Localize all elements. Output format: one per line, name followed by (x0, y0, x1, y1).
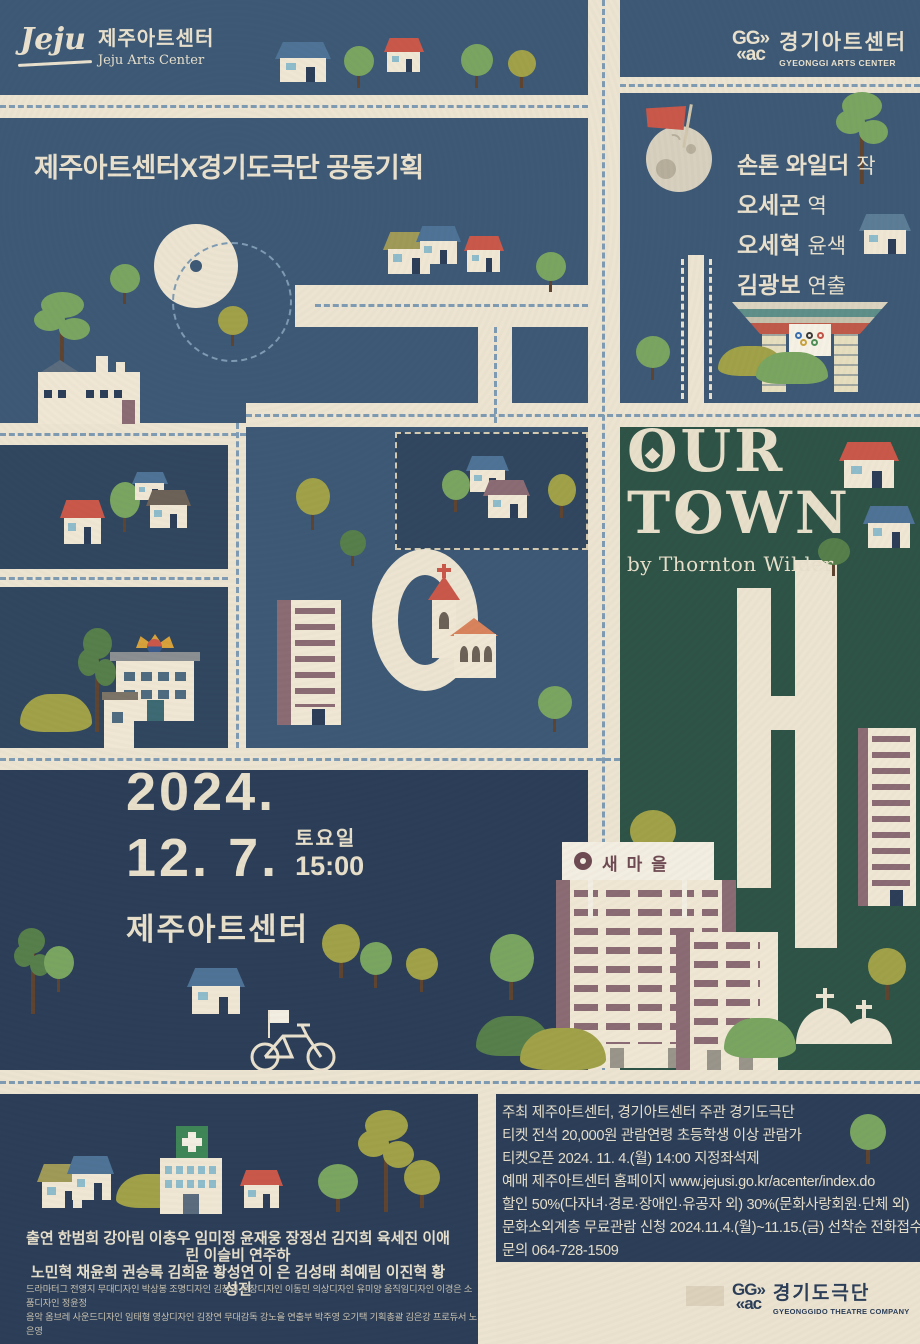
hospital-window (165, 1166, 172, 1174)
road-dash (0, 105, 588, 108)
hospital-window (187, 1166, 194, 1174)
house-icon (866, 506, 912, 548)
ggtc-mark-bottom: «ac (732, 1297, 765, 1311)
hospital-window (165, 1180, 172, 1188)
tree-canopy (110, 264, 140, 293)
info-line-booking: 예매 제주아트센터 홈페이지 www.jejusi.go.kr/acenter/… (502, 1171, 912, 1194)
tree-canopy (442, 470, 470, 500)
road-letter-bar (795, 560, 837, 948)
sign-post (588, 880, 593, 918)
apartment-column (676, 932, 690, 1070)
tree-icon (44, 946, 74, 992)
house-door (440, 250, 447, 264)
apartment-door (610, 1048, 624, 1068)
cast-line-1: 출연 한범희 강아림 이충우 임미정 윤재웅 장정선 김지희 육세진 이애린 이… (24, 1230, 452, 1264)
info-line-free-viewing: 문화소외계층 무료관람 신청 2024.11.4.(월)~11.15.(금) 선… (502, 1217, 912, 1240)
house-window (139, 487, 145, 492)
credit-adaptation-name: 오세혁 (737, 232, 800, 258)
house-window (424, 246, 432, 253)
sign-post (682, 880, 687, 918)
house-window (493, 500, 501, 507)
gate-leg (834, 334, 858, 392)
hospital-window (198, 1180, 205, 1188)
house-door (892, 532, 900, 548)
house-body (387, 52, 420, 72)
cityhall-window (141, 690, 152, 699)
flag-cloth (646, 106, 686, 130)
apartment-column (858, 728, 868, 906)
house-icon (70, 1156, 112, 1200)
house-icon (148, 490, 188, 528)
tree-canopy (318, 1164, 358, 1199)
flag-icon (646, 104, 698, 154)
credit-director-name: 김광보 (737, 272, 800, 298)
house-window (392, 56, 399, 62)
road-dash (0, 433, 246, 436)
house-door (888, 239, 896, 254)
schedule-day-time: 토요일 15:00 (295, 822, 364, 888)
tree-icon (536, 252, 566, 292)
jeju-logo-mark: Jeju (20, 22, 86, 58)
factory-window (86, 390, 94, 398)
house-door (263, 1194, 270, 1208)
bicycle-icon (246, 1008, 338, 1074)
house-door (84, 527, 91, 544)
church-window (439, 612, 449, 629)
tree-canopy (859, 120, 888, 144)
hospital-window (176, 1166, 183, 1174)
co-production-heading: 제주아트센터X경기도극단 공동기획 (34, 146, 424, 185)
apartment-door (890, 890, 903, 906)
credit-adaptation-role: 윤색 (807, 235, 846, 258)
house-door (872, 471, 882, 488)
tree-icon (508, 50, 536, 88)
cityhall-window (158, 672, 169, 681)
tree-icon (296, 478, 330, 530)
house-roof (384, 38, 424, 52)
grave-cross (856, 1005, 872, 1009)
ggac-mark-bottom: «ac (732, 47, 769, 63)
tree-icon (218, 306, 248, 346)
ticket-info: 주최 제주아트센터, 경기아트센터 주관 경기도극단 티켓 전석 20,000원… (502, 1102, 912, 1263)
house-icon (466, 236, 502, 272)
house-roof (146, 490, 191, 506)
hospital-window (209, 1180, 216, 1188)
tree-icon (340, 530, 366, 566)
house-body (72, 1174, 111, 1200)
tree-canopy (538, 686, 572, 719)
title-byline: by Thornton Wilder (627, 552, 851, 576)
grave-cross (862, 1000, 866, 1020)
house-door (406, 59, 412, 72)
credit-adaptation: 오세혁윤색 (737, 226, 876, 266)
ggtc-kr-label: 경기도극단 (773, 1278, 910, 1305)
grave-cross (816, 994, 834, 998)
house-window (77, 1179, 85, 1187)
schedule-time: 15:00 (295, 851, 364, 882)
cityhall-door (147, 700, 164, 721)
house-window (474, 475, 482, 481)
tree-icon (868, 948, 906, 1000)
ggac-en-label: GYEONGGI ARTS CENTER (779, 58, 907, 68)
credit-translator: 오세곤역 (737, 186, 876, 226)
our-town-poster: 새마을 Jeju 제주아트센터 Jeju Arts Center GG» «ac… (0, 0, 920, 1344)
factory-window (58, 390, 66, 398)
house-roof (60, 500, 105, 518)
tree-canopy (868, 948, 906, 985)
house-roof (483, 480, 530, 496)
house-icon (386, 38, 422, 72)
church-window (484, 646, 492, 662)
cityhall-window (158, 690, 169, 699)
staff-line-2: 음악 옴브레 사운드디자인 임태형 영상디자인 김장연 무대감독 강노을 연출부… (26, 1310, 478, 1338)
tree-canopy (44, 946, 74, 979)
tree-icon (360, 942, 392, 988)
info-line-discount: 할인 50%(다자녀·경로·장애인·유공자 외) 30%(문화사랑회원·단체 외… (502, 1194, 912, 1217)
schedule-venue: 제주아트센터 (126, 904, 364, 949)
ggtc-en-label: GYEONGGIDO THEATRE COMPANY (773, 1307, 910, 1316)
house-body (192, 986, 240, 1014)
apartment-icon (858, 728, 916, 906)
tree-canopy (296, 478, 330, 515)
schedule-date: 12. 7. (126, 828, 279, 888)
hospital-icon (160, 1126, 224, 1218)
apartment-floors (872, 736, 910, 888)
tree-canopy (360, 942, 392, 975)
jeju-kr-label: 제주아트센터 (98, 22, 214, 51)
house-window (47, 1187, 56, 1195)
performance-schedule: 2024. 12. 7. 토요일 15:00 제주아트센터 (126, 762, 364, 949)
jeju-logo-script: Jeju (20, 22, 86, 57)
cityhall-window (141, 672, 152, 681)
ggac-logo-text: 경기아트센터 GYEONGGI ARTS CENTER (779, 26, 907, 68)
hospital-window (176, 1180, 183, 1188)
house-door (306, 67, 315, 82)
ggac-logo-icon: GG» «ac (732, 31, 769, 63)
tree-icon (110, 264, 140, 304)
church-cross (437, 568, 451, 572)
tree-icon (548, 474, 576, 518)
hospital-window (198, 1166, 205, 1174)
house-body (280, 58, 326, 82)
olympic-rings-icon (800, 339, 807, 346)
cityhall-roof (110, 652, 200, 661)
credit-author-role: 작 (856, 155, 875, 178)
tree-canopy (59, 318, 90, 340)
house-door (486, 258, 492, 272)
factory-icon (38, 352, 140, 424)
staff-credits: 드라마터그 전영지 무대디자인 박상봉 조명디자인 김창기 분장디자인 이동민 … (26, 1282, 478, 1338)
ggac-kr-label: 경기아트센터 (779, 26, 907, 56)
road-dash (0, 1081, 920, 1084)
tree-icon (318, 1164, 358, 1212)
tree-icon (490, 934, 534, 1000)
grave-cross (823, 988, 827, 1010)
house-icon (242, 1170, 280, 1208)
hospital-cross (182, 1138, 202, 1146)
house-icon (62, 500, 102, 544)
hospital-window (187, 1180, 194, 1188)
church-tower (432, 600, 456, 658)
saemaul-logo-center (580, 858, 586, 864)
factory-window (100, 390, 108, 398)
olympic-rings-icon (817, 332, 824, 339)
house-window (198, 992, 208, 1000)
church-window (472, 646, 480, 662)
saemaul-sign: 새마을 (562, 842, 714, 918)
staff-line-1: 드라마터그 전영지 무대디자인 박상봉 조명디자인 김창기 분장디자인 이동민 … (26, 1282, 478, 1310)
house-door (510, 504, 518, 518)
credit-translator-name: 오세곤 (737, 192, 800, 218)
road-dash (0, 577, 228, 580)
apartment-icon (277, 600, 341, 725)
info-line-contact: 문의 064-728-1509 (502, 1240, 912, 1263)
sign-board: 새마을 (562, 842, 714, 880)
apartment-column (277, 600, 291, 725)
credit-author-name: 손톤 와일더 (737, 152, 849, 178)
tree-icon (404, 1160, 440, 1208)
tree-icon (406, 948, 438, 992)
house-roof (863, 506, 915, 524)
bush-icon (756, 352, 828, 384)
tree-canopy (536, 252, 566, 281)
house-door (219, 997, 228, 1014)
house-roof (464, 236, 504, 251)
house-icon (190, 968, 242, 1014)
tree-icon (538, 686, 572, 732)
annex-body (104, 700, 134, 748)
cityhall-window (175, 690, 186, 699)
tree-canopy (406, 948, 438, 980)
jeju-en-label: Jeju Arts Center (98, 53, 214, 68)
house-body (467, 250, 500, 272)
house-window (68, 523, 76, 531)
hospital-window (209, 1166, 216, 1174)
cityhall-window (124, 672, 135, 681)
playwright-credits: 손톤 와일더작 오세곤역 오세혁윤색 김광보연출 (737, 146, 876, 306)
tree-canopy (344, 46, 374, 76)
road-dash (681, 259, 684, 399)
title-line-our: OUR (627, 420, 851, 482)
info-line-ticket: 티켓 전석 20,000원 관람연령 초등학생 이상 관람가 (502, 1125, 912, 1148)
house-roof (416, 226, 461, 242)
schedule-day: 토요일 (295, 822, 364, 851)
credit-author: 손톤 와일더작 (737, 146, 876, 186)
tree-icon (442, 470, 470, 512)
tree-canopy (490, 934, 534, 982)
title-our-town: OUR TOWN by Thornton Wilder (627, 420, 851, 576)
house-window (286, 63, 296, 70)
house-door (94, 1183, 102, 1200)
house-roof (187, 968, 245, 987)
house-icon (486, 480, 528, 518)
tree-icon (636, 336, 670, 380)
house-body (844, 460, 894, 488)
factory-window (114, 390, 122, 398)
tree-canopy (340, 530, 366, 556)
house-roof (240, 1170, 283, 1186)
road-dash (0, 758, 620, 761)
apartment-door (312, 709, 325, 725)
house-window (248, 1190, 256, 1197)
house-window (393, 254, 402, 262)
tree-canopy (404, 1160, 440, 1195)
church-window (460, 646, 468, 662)
ggtc-logo-icon: GG» «ac (732, 1283, 765, 1311)
factory-door (122, 400, 135, 424)
jeju-logo-text: 제주아트센터 Jeju Arts Center (98, 22, 214, 68)
house-roof (466, 456, 509, 471)
house-window (873, 528, 882, 536)
tree-icon (344, 46, 374, 88)
city-hall-icon (102, 634, 208, 748)
road-dash (246, 414, 920, 417)
house-window (154, 510, 162, 517)
gyeonggido-theatre-company-logo: GG» «ac 경기도극단 GYEONGGIDO THEATRE COMPANY (732, 1278, 910, 1316)
saemaul-logo-icon (574, 852, 592, 870)
road (688, 255, 704, 403)
saemaul-sign-label: 새마을 (602, 850, 676, 875)
house-door (170, 514, 177, 528)
road-letter-bar (737, 696, 837, 730)
tree-canopy (548, 474, 576, 506)
house-roof (275, 42, 331, 59)
olympic-rings-icon (806, 332, 813, 339)
schedule-date-row: 12. 7. 토요일 15:00 (126, 822, 364, 888)
jeju-logo-underline (18, 60, 92, 67)
church-icon (402, 564, 498, 680)
jeju-arts-center-logo: Jeju 제주아트센터 Jeju Arts Center (20, 22, 214, 68)
tree-canopy (461, 44, 493, 76)
house-roof (67, 1156, 114, 1174)
tree-canopy (508, 50, 536, 77)
road (686, 1286, 724, 1306)
house-window (851, 466, 862, 474)
annex-window (112, 712, 123, 723)
road (478, 1094, 496, 1344)
house-body (64, 518, 101, 544)
house-icon (278, 42, 328, 82)
title-line-town: TOWN (627, 482, 851, 544)
hospital-door (183, 1194, 199, 1214)
info-line-host: 주최 제주아트센터, 경기아트센터 주관 경기도극단 (502, 1102, 912, 1125)
house-icon (418, 226, 458, 264)
road-dash (620, 84, 920, 87)
olympic-rings-icon (795, 332, 802, 339)
bush-icon (724, 1018, 796, 1058)
olympic-rings-icon (811, 339, 818, 346)
annex-roof (102, 692, 138, 700)
factory-window (44, 390, 52, 398)
road-letter-bar (737, 588, 771, 888)
credit-director-role: 연출 (807, 275, 846, 298)
road-dash (709, 259, 712, 399)
info-line-open: 티켓오픈 2024. 11. 4.(월) 14:00 지정좌석제 (502, 1148, 912, 1171)
road-dash (494, 327, 497, 423)
credit-translator-role: 역 (807, 195, 826, 218)
tree-canopy (636, 336, 670, 368)
tree-canopy (218, 306, 248, 335)
factory-left (38, 372, 82, 424)
church-spire (428, 576, 460, 600)
credit-director: 김광보연출 (737, 266, 876, 306)
road-dash (236, 423, 239, 748)
apartment-door (707, 1050, 721, 1070)
house-window (472, 255, 479, 261)
road-dash (315, 304, 588, 307)
apartment-floors (295, 608, 335, 707)
ggtc-logo-text: 경기도극단 GYEONGGIDO THEATRE COMPANY (773, 1278, 910, 1316)
cityhall-window (175, 672, 186, 681)
tree-icon (461, 44, 493, 88)
gyeonggi-arts-center-logo: GG» «ac 경기아트센터 GYEONGGI ARTS CENTER (732, 26, 907, 68)
schedule-year: 2024. (126, 762, 364, 822)
moon-crater (656, 159, 676, 179)
bush-icon (520, 1028, 606, 1070)
